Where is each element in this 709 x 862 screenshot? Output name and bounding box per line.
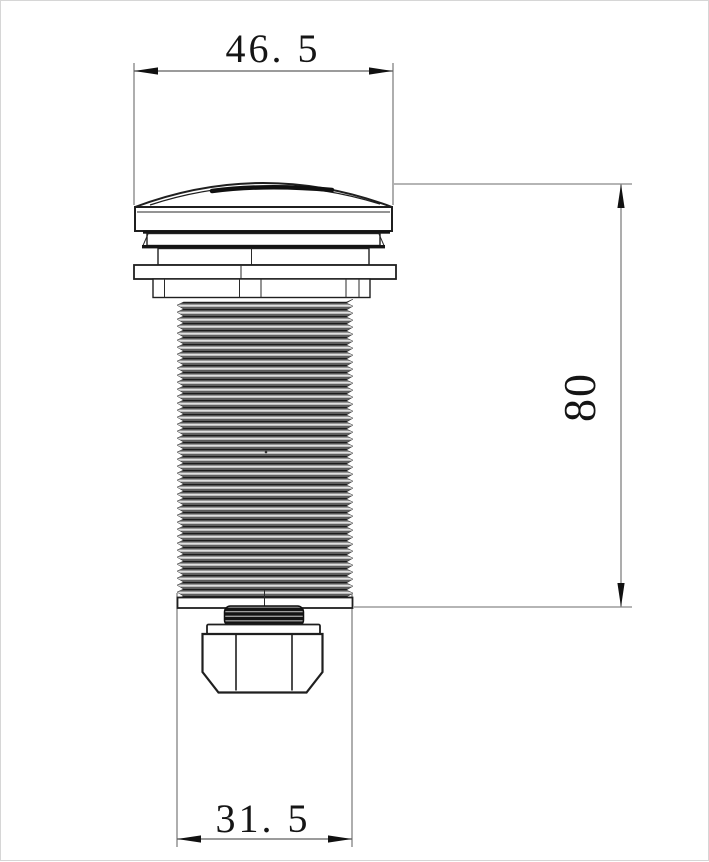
cap-rim <box>135 207 392 231</box>
arrowhead-down-icon <box>617 583 624 607</box>
thread-stub <box>225 606 304 626</box>
arrowhead-left-icon <box>177 835 201 842</box>
collar-stack <box>134 231 396 298</box>
thread-width-label: 31. 5 <box>216 796 311 841</box>
button-cap <box>135 183 392 231</box>
mounting-flange <box>134 265 396 279</box>
arrowhead-right-icon <box>328 835 352 842</box>
cap-dome-highlight-arc <box>212 187 332 191</box>
arrowhead-left-icon <box>134 67 158 74</box>
technical-drawing: 46. 5 80 31. 5 <box>1 1 709 862</box>
upper-collar <box>158 249 369 266</box>
arrowhead-up-icon <box>617 184 624 208</box>
hex-nut <box>203 634 323 693</box>
drawing-canvas: 46. 5 80 31. 5 <box>0 0 709 861</box>
dimension-cap-width: 46. 5 <box>134 26 393 205</box>
arrowhead-right-icon <box>369 67 393 74</box>
lock-ring <box>147 234 380 246</box>
overall-length-label: 80 <box>554 372 605 422</box>
threaded-shaft <box>177 299 353 599</box>
cap-width-label: 46. 5 <box>226 26 321 71</box>
shaft-end-assembly <box>178 590 353 693</box>
center-mark <box>265 451 268 454</box>
washer <box>207 625 320 635</box>
dimension-overall-length: 80 <box>354 184 632 607</box>
thread-body <box>177 299 353 599</box>
